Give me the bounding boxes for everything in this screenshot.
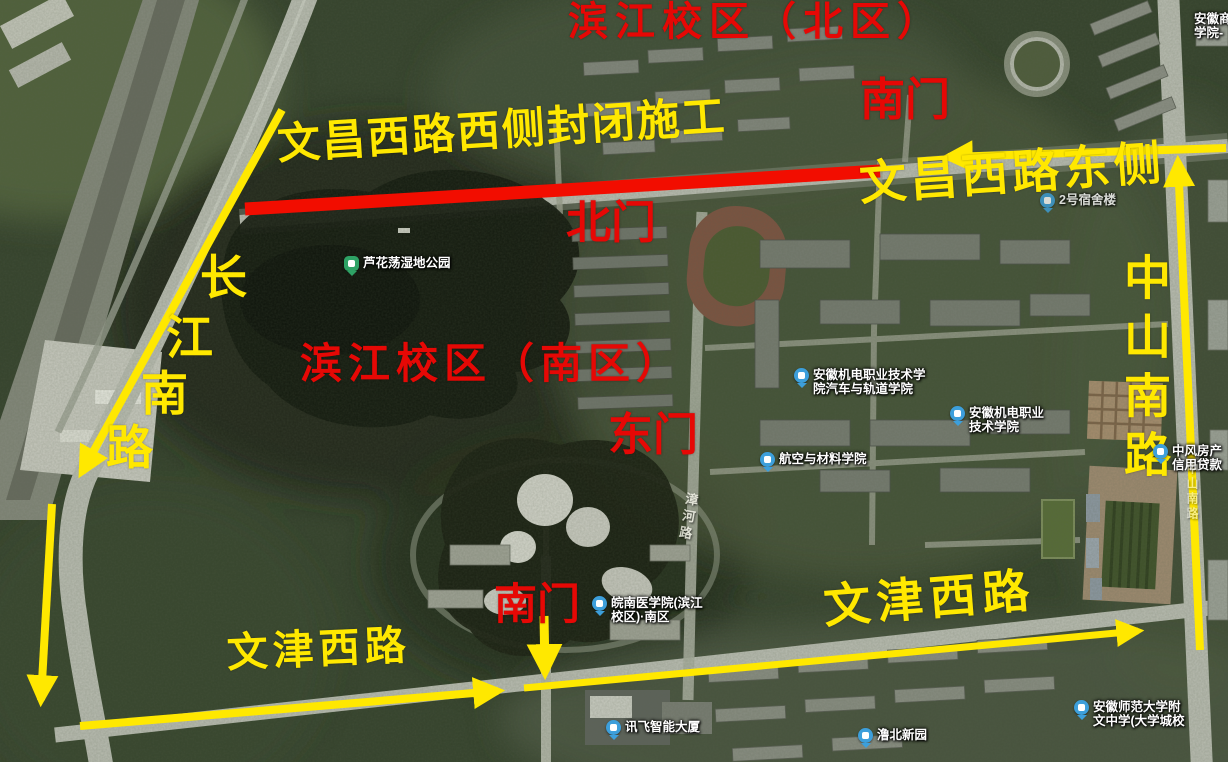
school-pin-icon <box>1074 700 1089 715</box>
poi-xunfei-tower: 讯飞智能大厦 <box>606 720 700 735</box>
label-changjiang-char-3: 南 <box>141 372 188 419</box>
building-pin-icon <box>858 728 873 743</box>
poi-jidian-college: 安徽机电职业技术学院 <box>950 406 1044 434</box>
school-pin-icon <box>760 452 775 467</box>
label-wenjin-west-left: 文津西路 <box>226 625 412 674</box>
building-pin-icon <box>1153 444 1168 459</box>
poi-corner-college: 安徽商学院- <box>1194 12 1228 40</box>
school-pin-icon <box>592 596 607 611</box>
label-campus-south: 滨江校区（南区） <box>300 344 684 386</box>
poi-dorm2: 2号宿舍楼 <box>1040 193 1116 208</box>
map-canvas: 滨江校区（北区） 南门 北门 滨江校区（南区） 东门 南门 文昌西路西侧封闭施工… <box>0 0 1228 762</box>
poi-lubei-xinyuan: 澛北新园 <box>858 728 927 743</box>
school-pin-icon <box>950 406 965 421</box>
label-changjiang-char-2: 江 <box>166 316 213 363</box>
poi-anshida-school: 安徽师范大学附文中学(大学城校 <box>1074 700 1185 728</box>
building-pin-icon <box>606 720 621 735</box>
poi-wannan-medical: 皖南医学院(滨江校区)·南区 <box>592 596 703 624</box>
building-pin-icon <box>1040 193 1055 208</box>
label-gate-south-north-campus: 南门 <box>860 78 950 123</box>
label-changjiang-char-4: 路 <box>106 426 153 473</box>
label-gate-south-south-campus: 南门 <box>494 584 580 627</box>
poi-jidian-auto-college: 安徽机电职业技术学院汽车与轨道学院 <box>794 368 926 396</box>
park-pin-icon <box>344 256 359 271</box>
label-gate-north: 北门 <box>566 201 656 246</box>
roadlabel-zhongshan: 中山南路 <box>1184 462 1201 522</box>
poi-luhuadang-park: 芦花荡湿地公园 <box>344 256 451 271</box>
label-changjiang-char-1: 长 <box>200 256 247 303</box>
school-pin-icon <box>794 368 809 383</box>
label-campus-north: 滨江校区（北区） <box>568 2 944 42</box>
label-gate-east: 东门 <box>608 413 698 458</box>
poi-hangkong-college: 航空与材料学院 <box>760 452 867 467</box>
